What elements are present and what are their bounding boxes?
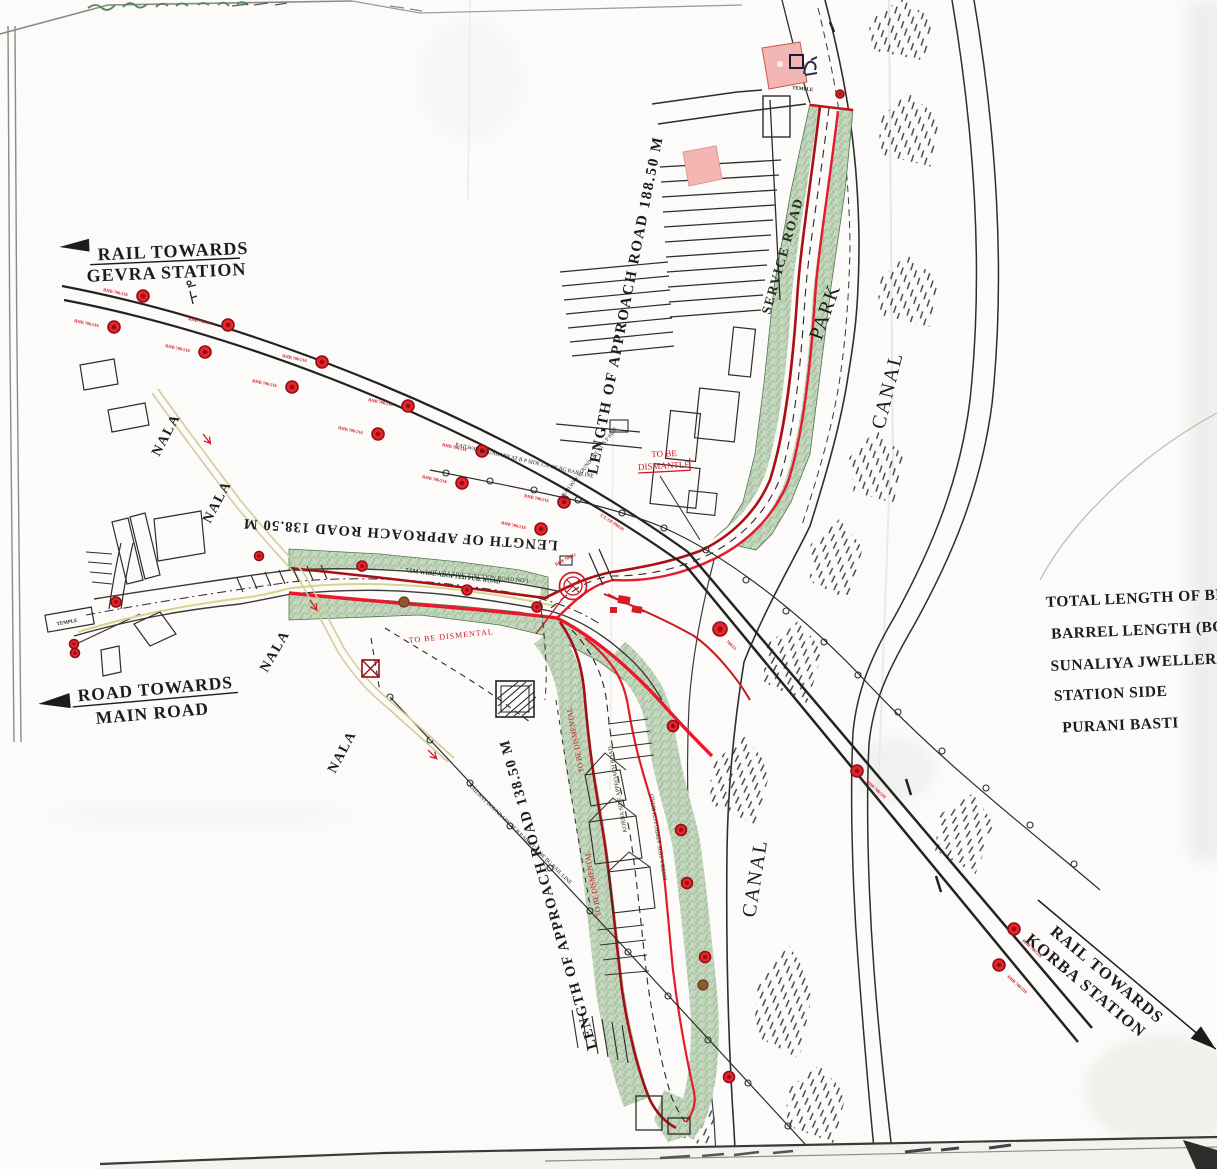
svg-text:TO BE: TO BE xyxy=(651,448,678,459)
